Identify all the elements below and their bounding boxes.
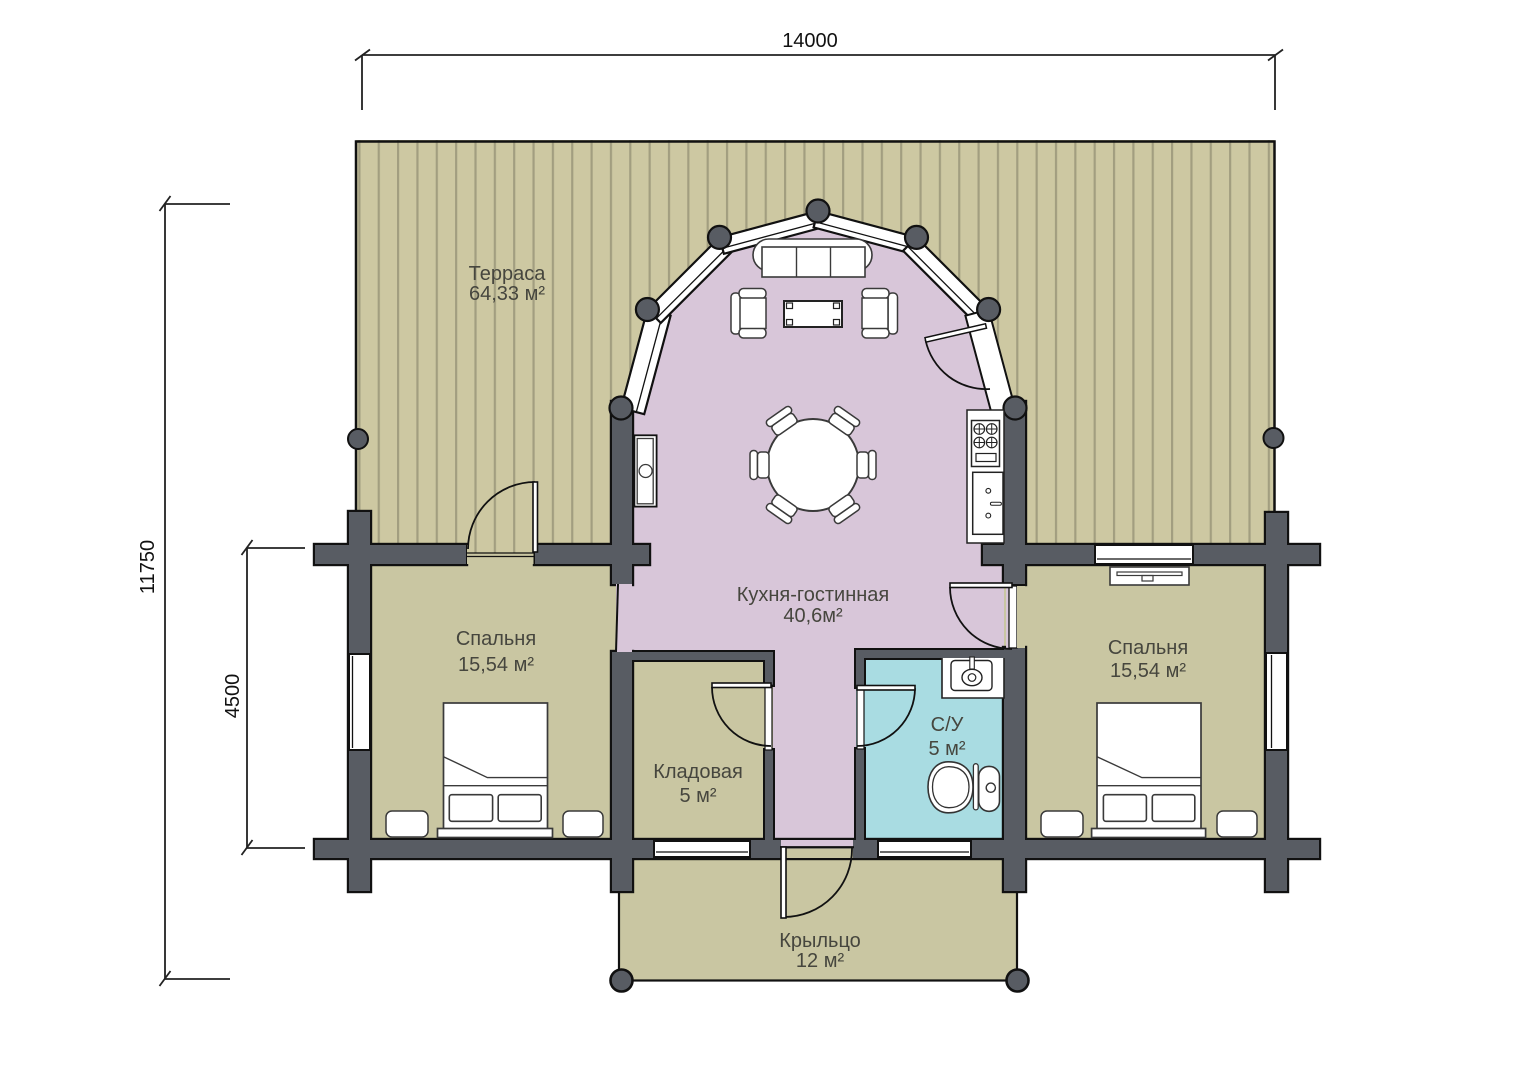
svg-text:12 м²: 12 м² bbox=[796, 950, 845, 972]
svg-text:5 м²: 5 м² bbox=[928, 738, 965, 760]
svg-text:Спальня: Спальня bbox=[456, 628, 536, 650]
svg-text:64,33 м²: 64,33 м² bbox=[469, 283, 545, 305]
svg-text:С/У: С/У bbox=[931, 714, 964, 736]
svg-text:Терраса: Терраса bbox=[469, 263, 547, 285]
svg-text:15,54 м²: 15,54 м² bbox=[1110, 660, 1186, 682]
svg-text:40,6м²: 40,6м² bbox=[783, 605, 843, 627]
svg-text:15,54 м²: 15,54 м² bbox=[458, 654, 534, 676]
svg-text:5 м²: 5 м² bbox=[679, 785, 716, 807]
svg-text:Крыльцо: Крыльцо bbox=[779, 930, 861, 952]
svg-text:Кладовая: Кладовая bbox=[653, 761, 743, 783]
svg-text:Спальня: Спальня bbox=[1108, 637, 1188, 659]
svg-text:Кухня-гостинная: Кухня-гостинная bbox=[737, 584, 890, 606]
svg-text:14000: 14000 bbox=[782, 30, 838, 52]
svg-text:11750: 11750 bbox=[137, 540, 159, 594]
svg-text:4500: 4500 bbox=[222, 674, 244, 719]
